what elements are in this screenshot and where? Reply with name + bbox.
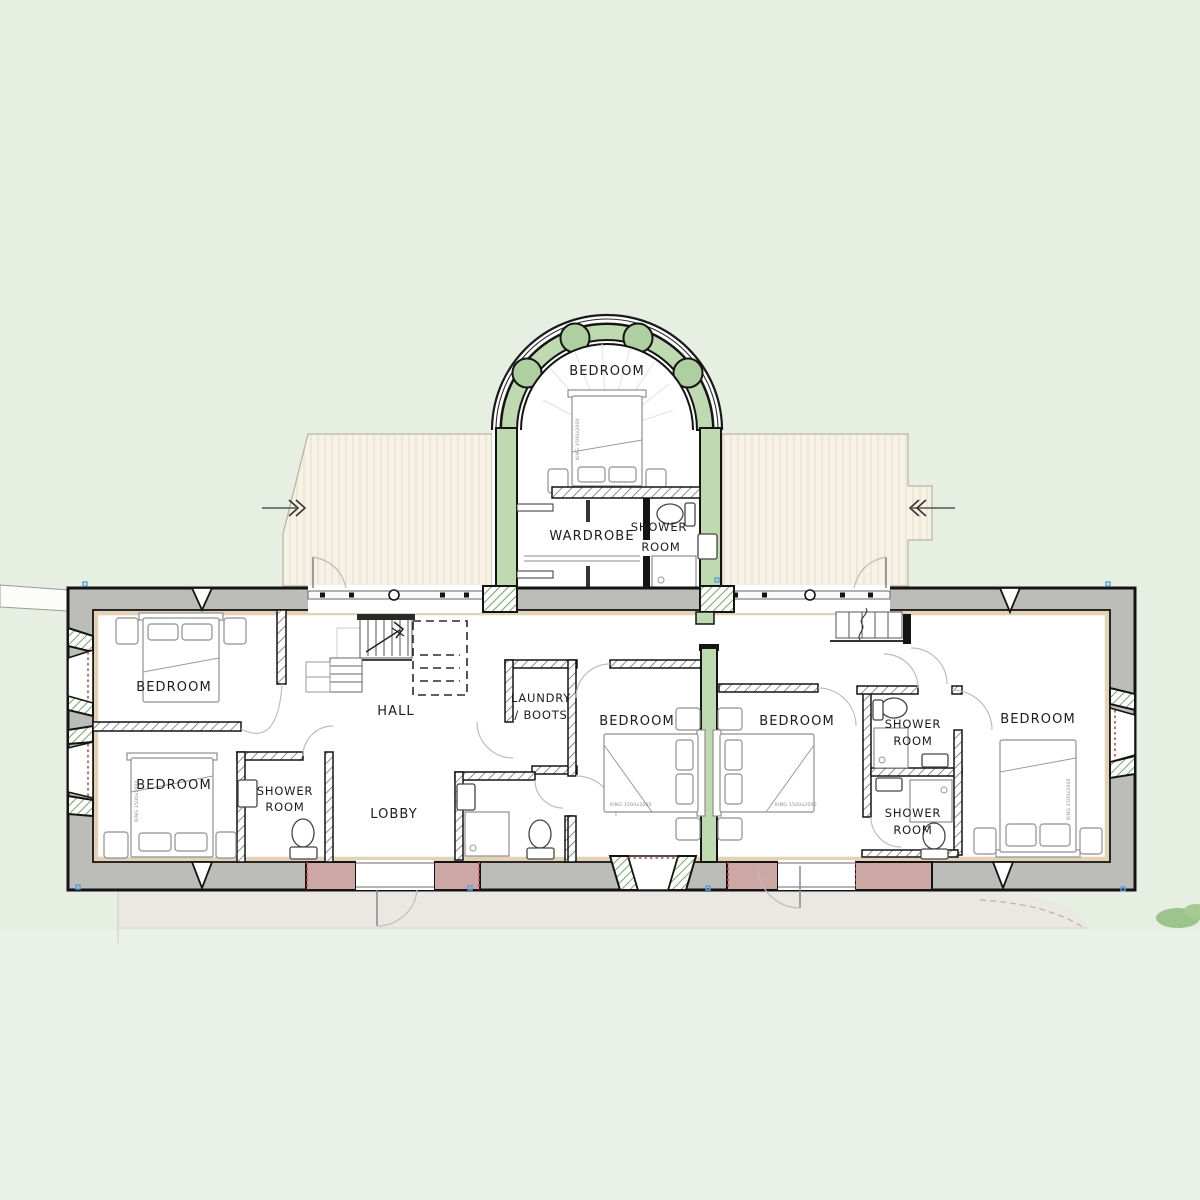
screen-post <box>805 590 815 600</box>
new-wall <box>727 862 778 890</box>
room-label-shower-turret: ROOM <box>641 540 680 554</box>
room-label-shower-w: ROOM <box>265 800 304 814</box>
room-label-shower-se: ROOM <box>893 823 932 837</box>
terrace <box>118 890 1088 928</box>
new-wall <box>855 862 932 890</box>
sink <box>698 534 717 559</box>
room-label-lobby: LOBBY <box>370 807 418 822</box>
bed-size-label: KING 1500x2000 <box>610 802 652 808</box>
room-label-bedroom-sw: BEDROOM <box>136 778 212 793</box>
shower-tray <box>652 556 696 587</box>
window <box>1110 708 1135 762</box>
room-label-wardrobe: WARDROBE <box>549 529 634 544</box>
sink <box>876 778 902 791</box>
room-label-bedroom-nw: BEDROOM <box>136 680 212 695</box>
room-label-bedroom-c1: BEDROOM <box>599 714 675 729</box>
floor-plan-drawing: KING 1500x2000 <box>0 0 1200 1200</box>
room-label-bedroom-turret: BEDROOM <box>569 364 645 379</box>
screen-post <box>389 590 399 600</box>
turret-column-right <box>700 428 721 588</box>
bed-size-label: KING 1500x2000 <box>775 802 817 808</box>
east-window <box>1110 688 1135 778</box>
room-label-shower-ne: SHOWER <box>885 717 941 731</box>
splayed-window <box>610 856 696 890</box>
room-label-shower-ne: ROOM <box>893 734 932 748</box>
room-label-shower-w: SHOWER <box>257 784 313 798</box>
room-label-shower-turret: SHOWER <box>631 520 687 534</box>
sink <box>922 754 948 767</box>
room-label-laundry: / BOOTS <box>514 708 567 722</box>
floor-plan: KING 1500x2000 <box>0 0 1200 1200</box>
sink <box>238 780 257 807</box>
room-label-bedroom-c2: BEDROOM <box>759 714 835 729</box>
shower-tray <box>465 812 509 856</box>
new-wall <box>306 862 356 890</box>
room-label-hall: HALL <box>377 704 415 719</box>
bed-size-label: KING 1500x2000 <box>575 418 581 460</box>
new-wall <box>434 862 480 890</box>
sink <box>457 784 475 810</box>
window <box>68 742 93 798</box>
turret-base-right <box>700 586 734 612</box>
footpath <box>0 585 68 611</box>
room-label-shower-se: SHOWER <box>885 806 941 820</box>
turret-column-left <box>496 428 517 588</box>
room-label-bedroom-e: BEDROOM <box>1000 712 1076 727</box>
bed-size-label: KING 1500x2000 <box>1066 778 1072 820</box>
turret-base-left <box>483 586 517 612</box>
room-label-laundry: LAUNDRY <box>511 691 571 705</box>
window <box>68 650 93 703</box>
